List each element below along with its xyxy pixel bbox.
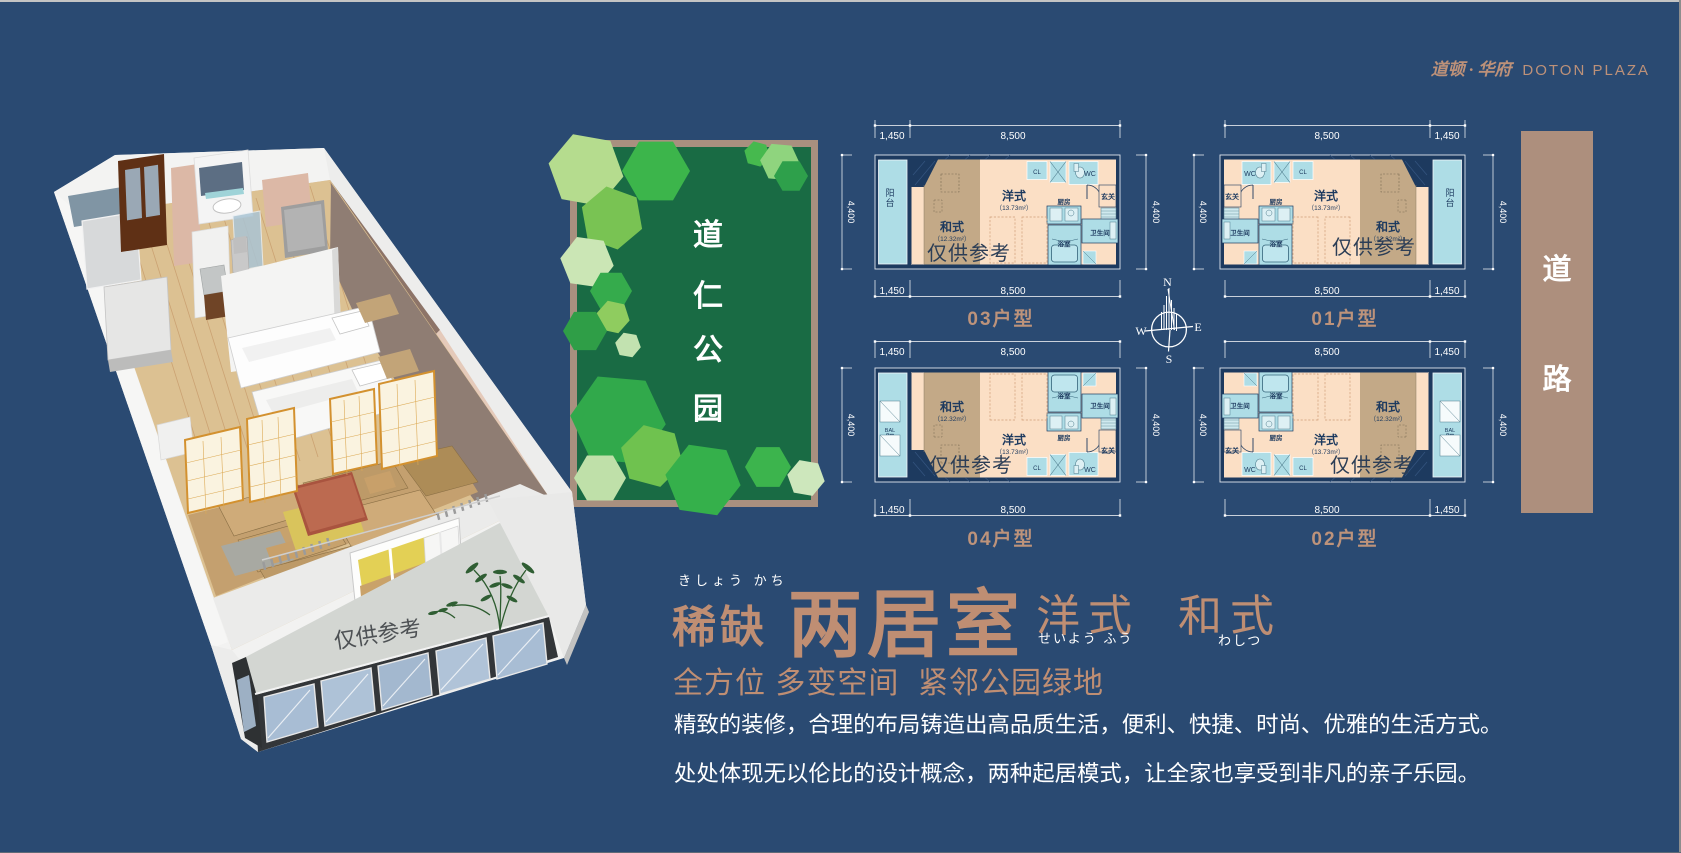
svg-text:WC: WC bbox=[1084, 467, 1096, 474]
svg-text:8,500: 8,500 bbox=[1000, 286, 1025, 297]
svg-text:浴室: 浴室 bbox=[1270, 239, 1284, 248]
svg-text:道: 道 bbox=[693, 219, 723, 252]
svg-text:和式: 和式 bbox=[1375, 399, 1400, 414]
svg-text:仅供参考: 仅供参考 bbox=[1332, 236, 1416, 259]
svg-text:1,450: 1,450 bbox=[879, 505, 904, 516]
svg-text:厨房: 厨房 bbox=[1270, 433, 1284, 442]
svg-text:（13.73m²）: （13.73m²） bbox=[996, 204, 1033, 212]
svg-text:4,400: 4,400 bbox=[846, 414, 856, 437]
svg-text:卫生间: 卫生间 bbox=[1090, 401, 1110, 410]
svg-text:厨房: 厨房 bbox=[1058, 197, 1072, 206]
svg-text:1,450: 1,450 bbox=[1434, 347, 1459, 358]
svg-text:玄关: 玄关 bbox=[1225, 446, 1239, 455]
svg-text:03户型: 03户型 bbox=[967, 307, 1034, 330]
svg-text:玄关: 玄关 bbox=[1101, 192, 1115, 201]
svg-text:4,400: 4,400 bbox=[846, 201, 856, 224]
svg-text:玄关: 玄关 bbox=[1101, 446, 1115, 455]
svg-text:WC: WC bbox=[1244, 467, 1256, 474]
svg-text:04户型: 04户型 bbox=[967, 527, 1034, 550]
svg-text:（12.32m²）: （12.32m²） bbox=[934, 235, 971, 243]
svg-text:仁: 仁 bbox=[693, 280, 723, 313]
svg-text:浴室: 浴室 bbox=[1058, 239, 1072, 248]
svg-text:阳: 阳 bbox=[1445, 188, 1454, 198]
svg-text:1,450: 1,450 bbox=[1434, 505, 1459, 516]
svg-text:01户型: 01户型 bbox=[1311, 307, 1378, 330]
svg-text:S: S bbox=[1166, 352, 1173, 366]
svg-text:洋式: 洋式 bbox=[1002, 188, 1026, 203]
svg-text:WC: WC bbox=[1084, 171, 1096, 178]
svg-text:1,450: 1,450 bbox=[879, 286, 904, 297]
svg-text:（12.32m²）: （12.32m²） bbox=[1370, 415, 1407, 423]
svg-text:CL: CL bbox=[1299, 170, 1307, 176]
svg-text:CL: CL bbox=[1299, 466, 1307, 472]
svg-text:BAL: BAL bbox=[1445, 428, 1455, 434]
svg-text:卫生间: 卫生间 bbox=[1230, 228, 1250, 237]
svg-text:（12.32m²）: （12.32m²） bbox=[934, 415, 971, 423]
svg-text:路: 路 bbox=[1542, 363, 1572, 396]
svg-text:4,400: 4,400 bbox=[1198, 414, 1208, 437]
svg-text:1,450: 1,450 bbox=[879, 347, 904, 358]
svg-text:公: 公 bbox=[693, 334, 723, 367]
svg-text:BAL: BAL bbox=[885, 428, 895, 434]
svg-text:阳: 阳 bbox=[885, 188, 894, 198]
svg-text:仅供参考: 仅供参考 bbox=[1330, 454, 1414, 477]
svg-text:洋式: 洋式 bbox=[1002, 432, 1026, 447]
svg-text:8,500: 8,500 bbox=[1000, 347, 1025, 358]
svg-text:N: N bbox=[1163, 275, 1172, 289]
svg-text:02户型: 02户型 bbox=[1311, 527, 1378, 550]
svg-text:WC: WC bbox=[1244, 171, 1256, 178]
svg-text:浴室: 浴室 bbox=[1058, 391, 1072, 400]
svg-text:4,400: 4,400 bbox=[1198, 201, 1208, 224]
svg-text:道: 道 bbox=[1542, 253, 1571, 286]
svg-text:和式: 和式 bbox=[939, 399, 964, 414]
svg-text:4,400: 4,400 bbox=[1498, 414, 1508, 437]
svg-text:8,500: 8,500 bbox=[1314, 131, 1339, 142]
svg-text:8,500: 8,500 bbox=[1314, 286, 1339, 297]
svg-text:E: E bbox=[1194, 320, 1201, 334]
svg-text:仅供参考: 仅供参考 bbox=[927, 242, 1011, 265]
svg-text:台: 台 bbox=[885, 197, 894, 208]
svg-text:玄关: 玄关 bbox=[1225, 192, 1239, 201]
svg-text:8,500: 8,500 bbox=[1000, 505, 1025, 516]
svg-text:1,450: 1,450 bbox=[1434, 131, 1459, 142]
svg-text:和式: 和式 bbox=[939, 219, 964, 234]
svg-text:1,450: 1,450 bbox=[879, 131, 904, 142]
svg-text:8,500: 8,500 bbox=[1000, 131, 1025, 142]
svg-text:厨房: 厨房 bbox=[1058, 433, 1072, 442]
svg-text:园: 园 bbox=[693, 393, 723, 426]
svg-text:W: W bbox=[1135, 324, 1147, 338]
svg-text:台: 台 bbox=[1445, 197, 1454, 208]
svg-text:浴室: 浴室 bbox=[1270, 391, 1284, 400]
svg-text:4,400: 4,400 bbox=[1151, 201, 1161, 224]
svg-text:和式: 和式 bbox=[1375, 219, 1400, 234]
svg-text:（13.73m²）: （13.73m²） bbox=[1308, 204, 1345, 212]
svg-text:洋式: 洋式 bbox=[1314, 432, 1338, 447]
svg-text:8,500: 8,500 bbox=[1314, 505, 1339, 516]
svg-text:1,450: 1,450 bbox=[1434, 286, 1459, 297]
svg-text:4,400: 4,400 bbox=[1498, 201, 1508, 224]
svg-text:卫生间: 卫生间 bbox=[1230, 401, 1250, 410]
svg-text:洋式: 洋式 bbox=[1314, 188, 1338, 203]
svg-text:8,500: 8,500 bbox=[1314, 347, 1339, 358]
svg-text:卫生间: 卫生间 bbox=[1090, 228, 1110, 237]
svg-text:CL: CL bbox=[1033, 466, 1041, 472]
svg-text:厨房: 厨房 bbox=[1270, 197, 1284, 206]
svg-text:仅供参考: 仅供参考 bbox=[929, 454, 1013, 477]
svg-text:4,400: 4,400 bbox=[1151, 414, 1161, 437]
svg-text:CL: CL bbox=[1033, 170, 1041, 176]
